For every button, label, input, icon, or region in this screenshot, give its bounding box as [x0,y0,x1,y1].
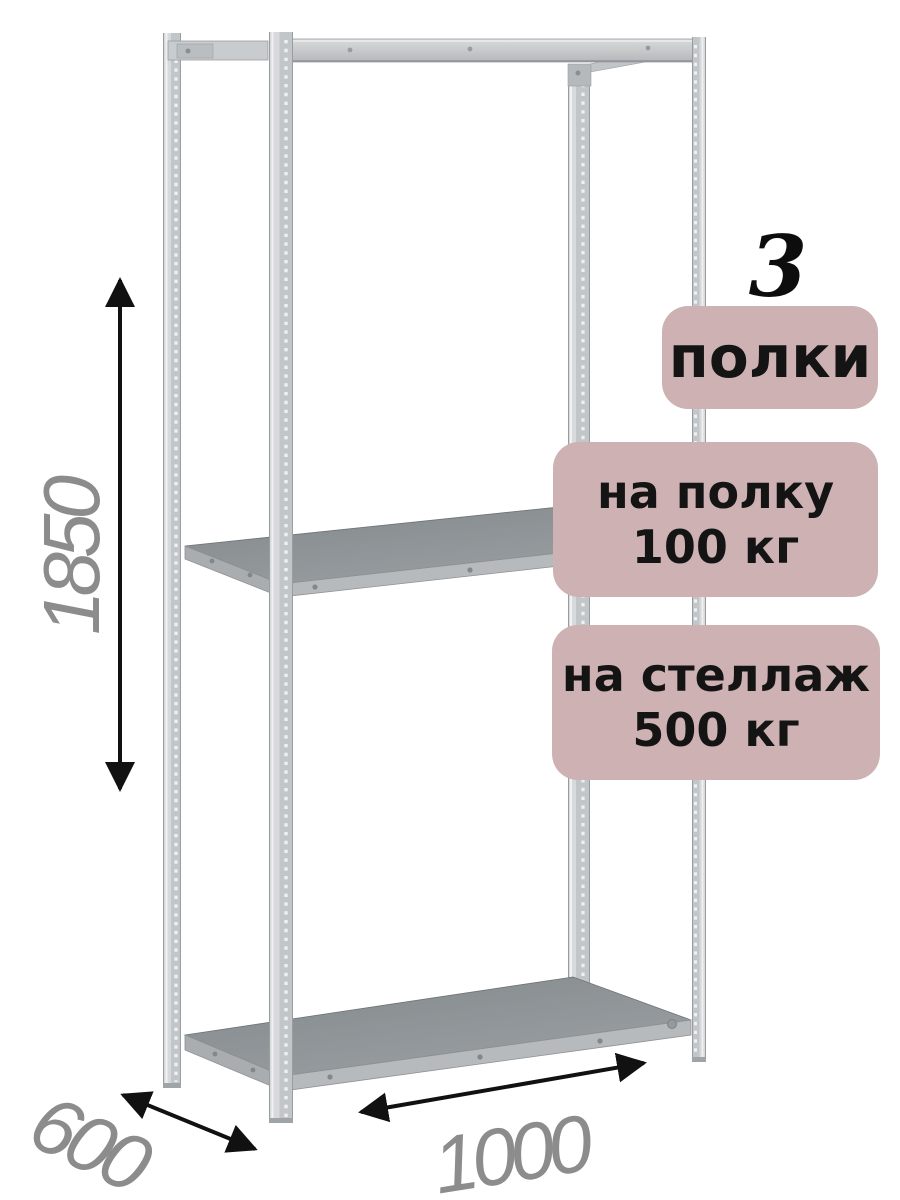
bolt [312,584,317,589]
top-shelf [168,39,700,86]
top-shelf-bracket [177,44,213,58]
height-dimension-label: 1850 [32,478,112,638]
per-shelf-load-badge: на полку 100 кг [553,442,878,597]
bolt [468,47,473,52]
shelf-count-number: 3 [728,217,828,317]
shelf-count-badge: полки [662,306,878,409]
bolt [213,1052,218,1057]
bolt [646,46,651,51]
per-rack-load-badge: на стеллаж 500 кг [552,625,880,780]
post-foot [692,1057,706,1062]
bolt [467,567,472,572]
bolt [597,1038,602,1043]
corner-bolt [668,1020,677,1029]
bottom-shelf [185,977,691,1091]
post-foot [163,1083,181,1088]
bolt [477,1054,482,1059]
post-face [269,32,280,1123]
top-shelf-front-beam [281,39,700,62]
bolt [327,1074,332,1079]
post-foot [269,1118,293,1123]
bolt [348,48,353,53]
per-rack-load-line1: на стеллаж [552,650,880,701]
bolt [248,573,253,578]
per-rack-load-line2: 500 кг [552,705,880,756]
bolt [186,49,191,54]
bolt [251,1068,256,1073]
bolt [210,559,215,564]
shelving-rack-illustration [0,0,900,1200]
bolt [576,71,581,76]
post-back-left [163,33,181,1088]
per-shelf-load-line1: на полку [553,467,878,518]
per-shelf-load-line2: 100 кг [553,522,878,573]
post-face [171,33,181,1088]
product-image: 1850 600 1000 3 полки на полку 100 кг на… [0,0,900,1200]
post-front-left [269,32,293,1123]
